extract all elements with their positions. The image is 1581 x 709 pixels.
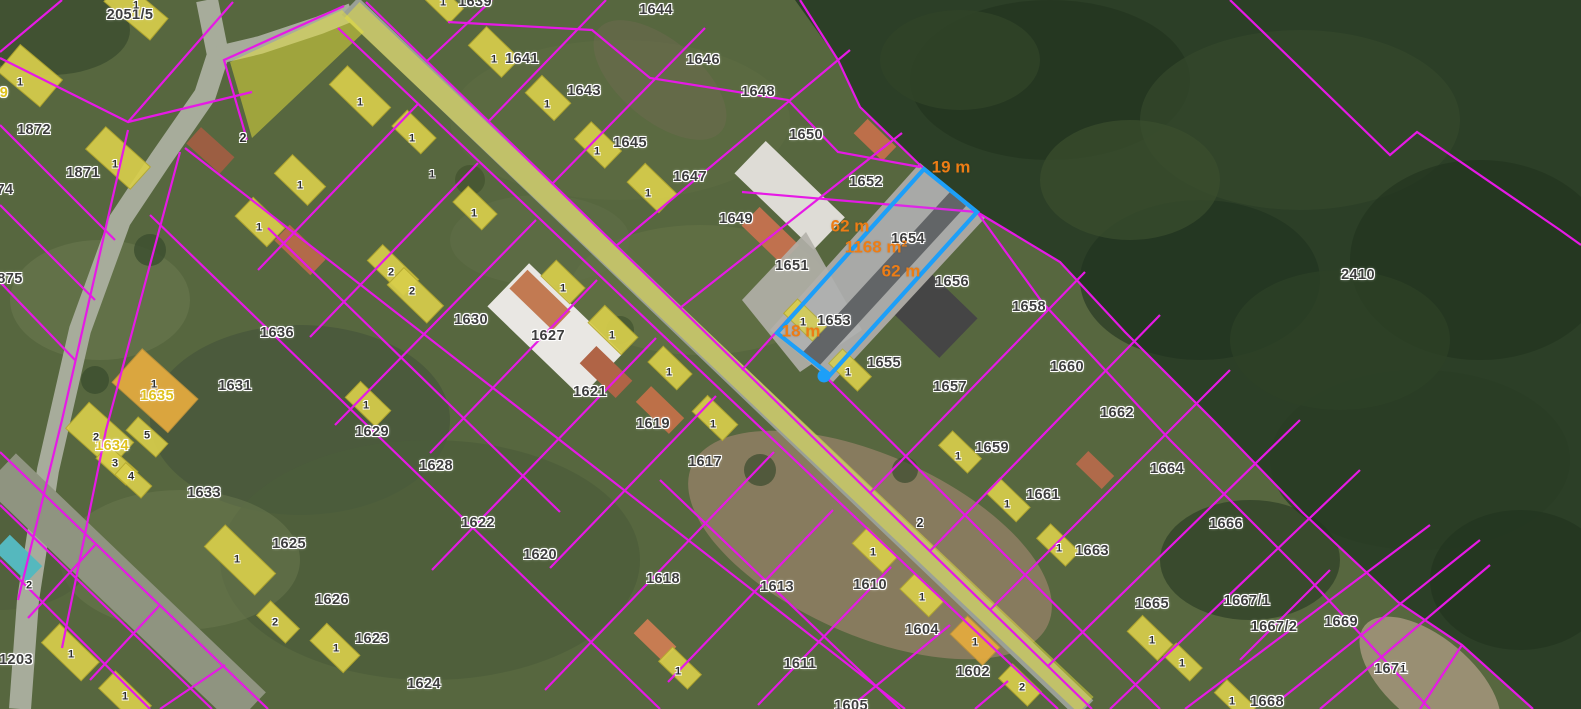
parcel-label-1664[interactable]: 1664: [1150, 462, 1184, 477]
parcel-label-1661[interactable]: 1661: [1026, 488, 1060, 503]
parcel-label-1617[interactable]: 1617: [688, 455, 722, 470]
building-label-3: 3: [112, 459, 118, 470]
parcel-label-1872[interactable]: 1872: [17, 123, 51, 138]
parcel-label-1627[interactable]: 1627: [531, 329, 565, 344]
building-label-1: 1: [1400, 665, 1406, 676]
building-label-1: 1: [68, 650, 74, 661]
parcel-label-1618[interactable]: 1618: [646, 572, 680, 587]
parcel-label-1602[interactable]: 1602: [956, 665, 990, 680]
parcel-label-1659[interactable]: 1659: [975, 441, 1009, 456]
building-label-1: 1: [409, 134, 415, 145]
building-label-1: 1: [955, 452, 961, 463]
parcel-label-1655[interactable]: 1655: [867, 356, 901, 371]
building-label-1: 1: [1004, 500, 1010, 511]
parcel-label-1646[interactable]: 1646: [686, 53, 720, 68]
parcel-label-1619[interactable]: 1619: [636, 417, 670, 432]
building-label-1: 1: [471, 209, 477, 220]
parcel-label-1633[interactable]: 1633: [187, 486, 221, 501]
parcel-label-1667_1[interactable]: 1667/1: [1224, 594, 1271, 609]
parcel-label-1666[interactable]: 1666: [1209, 517, 1243, 532]
building-label-1: 1: [234, 555, 240, 566]
road-parcel-label-2: 2: [240, 132, 247, 145]
parcel-label-1871[interactable]: 1871: [66, 166, 100, 181]
road-parcel-label-2: 2: [917, 517, 924, 530]
building-label-1: 1: [919, 593, 925, 604]
building-label-1: 1: [357, 98, 363, 109]
measurement-label-62_m: 62 m: [882, 263, 921, 280]
parcel-label-1643[interactable]: 1643: [567, 84, 601, 99]
building-label-2: 2: [388, 268, 394, 279]
building-label-1: 1: [363, 401, 369, 412]
parcel-label-1622[interactable]: 1622: [461, 516, 495, 531]
measurement-label-62_m: 62 m: [831, 218, 870, 235]
parcel-label-1652[interactable]: 1652: [849, 175, 883, 190]
building-label-1: 1: [560, 284, 566, 295]
building-label-1: 1: [440, 0, 446, 9]
building-label-1: 1: [151, 380, 157, 391]
building-label-2: 2: [93, 433, 99, 444]
parcel-label-1651[interactable]: 1651: [775, 259, 809, 274]
building-label-1: 1: [17, 78, 23, 89]
building-label-1: 1: [675, 667, 681, 678]
parcel-label-1658[interactable]: 1658: [1012, 300, 1046, 315]
building-label-1: 1: [256, 223, 262, 234]
parcel-label-1669[interactable]: 1669: [1324, 615, 1358, 630]
building-label-1: 1: [972, 638, 978, 649]
parcel-label-1626[interactable]: 1626: [315, 593, 349, 608]
building-label-4: 4: [128, 472, 134, 483]
parcel-label-1621[interactable]: 1621: [573, 385, 607, 400]
parcel-label-1660[interactable]: 1660: [1050, 360, 1084, 375]
parcel-label-1630[interactable]: 1630: [454, 313, 488, 328]
parcel-label-1663[interactable]: 1663: [1075, 544, 1109, 559]
parcel-label-1667_2[interactable]: 1667/2: [1251, 620, 1298, 635]
building-label-1: 1: [594, 147, 600, 158]
cadastral-map-viewport[interactable]: 2051/51872187174875120316391644164116461…: [0, 0, 1581, 709]
parcel-label-1650[interactable]: 1650: [789, 128, 823, 143]
building-label-1: 1: [1229, 697, 1235, 708]
parcel-label-1624[interactable]: 1624: [407, 677, 441, 692]
parcel-label-1605[interactable]: 1605: [834, 699, 868, 709]
parcel-label-1625[interactable]: 1625: [272, 537, 306, 552]
parcel-label-1604[interactable]: 1604: [905, 623, 939, 638]
parcel-label-1653[interactable]: 1653: [817, 314, 851, 329]
building-label-1: 1: [491, 55, 497, 66]
parcel-label-1634[interactable]: 1634: [95, 439, 129, 454]
parcel-label-1647[interactable]: 1647: [673, 170, 707, 185]
building-label-1: 1: [645, 189, 651, 200]
parcel-label-1613[interactable]: 1613: [760, 580, 794, 595]
parcel-label-1662[interactable]: 1662: [1100, 406, 1134, 421]
measurement-label-1168_m_: 1168 m²: [845, 239, 907, 256]
building-label-2: 2: [26, 581, 32, 592]
building-label-1: 1: [133, 1, 139, 12]
parcel-label-875[interactable]: 875: [0, 272, 23, 287]
parcel-label-1610[interactable]: 1610: [853, 578, 887, 593]
building-label-1: 1: [1179, 659, 1185, 670]
building-label-2: 2: [1019, 683, 1025, 694]
parcel-label-1657[interactable]: 1657: [933, 380, 967, 395]
parcel-label-74[interactable]: 74: [0, 183, 13, 198]
parcel-label-1656[interactable]: 1656: [935, 275, 969, 290]
labels-layer: 2051/51872187174875120316391644164116461…: [0, 0, 1581, 709]
measurement-label-19_m: 19 m: [932, 159, 971, 176]
building-label-1: 1: [710, 420, 716, 431]
building-label-1: 1: [1149, 636, 1155, 647]
parcel-label-1641[interactable]: 1641: [505, 52, 539, 67]
building-label-1: 1: [297, 181, 303, 192]
parcel-label-2410[interactable]: 2410: [1341, 268, 1375, 283]
parcel-label-1203[interactable]: 1203: [0, 653, 33, 668]
building-label-2: 2: [409, 287, 415, 298]
parcel-label-1620[interactable]: 1620: [523, 548, 557, 563]
parcel-label-1665[interactable]: 1665: [1135, 597, 1169, 612]
parcel-label-1639[interactable]: 1639: [458, 0, 492, 9]
parcel-label-1636[interactable]: 1636: [260, 326, 294, 341]
parcel-label-9[interactable]: 9: [0, 86, 8, 101]
parcel-label-1668[interactable]: 1668: [1250, 695, 1284, 709]
building-label-1: 1: [112, 160, 118, 171]
parcel-label-2051_5[interactable]: 2051/5: [107, 8, 154, 23]
parcel-label-1649[interactable]: 1649: [719, 212, 753, 227]
measurement-label-18_m: 18 m: [782, 323, 821, 340]
parcel-label-1629[interactable]: 1629: [355, 425, 389, 440]
building-label-1: 1: [609, 331, 615, 342]
building-label-5: 5: [144, 431, 150, 442]
building-label-1: 1: [333, 644, 339, 655]
parcel-label-1635[interactable]: 1635: [140, 389, 174, 404]
building-label-1: 1: [544, 100, 550, 111]
parcel-label-1648[interactable]: 1648: [741, 85, 775, 100]
building-label-1: 1: [1056, 544, 1062, 555]
parcel-label-1645[interactable]: 1645: [613, 136, 647, 151]
building-label-1: 1: [122, 692, 128, 703]
parcel-label-1631[interactable]: 1631: [218, 379, 252, 394]
parcel-label-1611[interactable]: 1611: [783, 657, 816, 672]
parcel-label-1628[interactable]: 1628: [419, 459, 453, 474]
building-label-1: 1: [429, 170, 435, 181]
building-label-2: 2: [272, 618, 278, 629]
building-label-1: 1: [666, 368, 672, 379]
parcel-label-1644[interactable]: 1644: [639, 3, 673, 18]
building-label-1: 1: [845, 368, 851, 379]
building-label-1: 1: [870, 548, 876, 559]
parcel-label-1623[interactable]: 1623: [355, 632, 389, 647]
